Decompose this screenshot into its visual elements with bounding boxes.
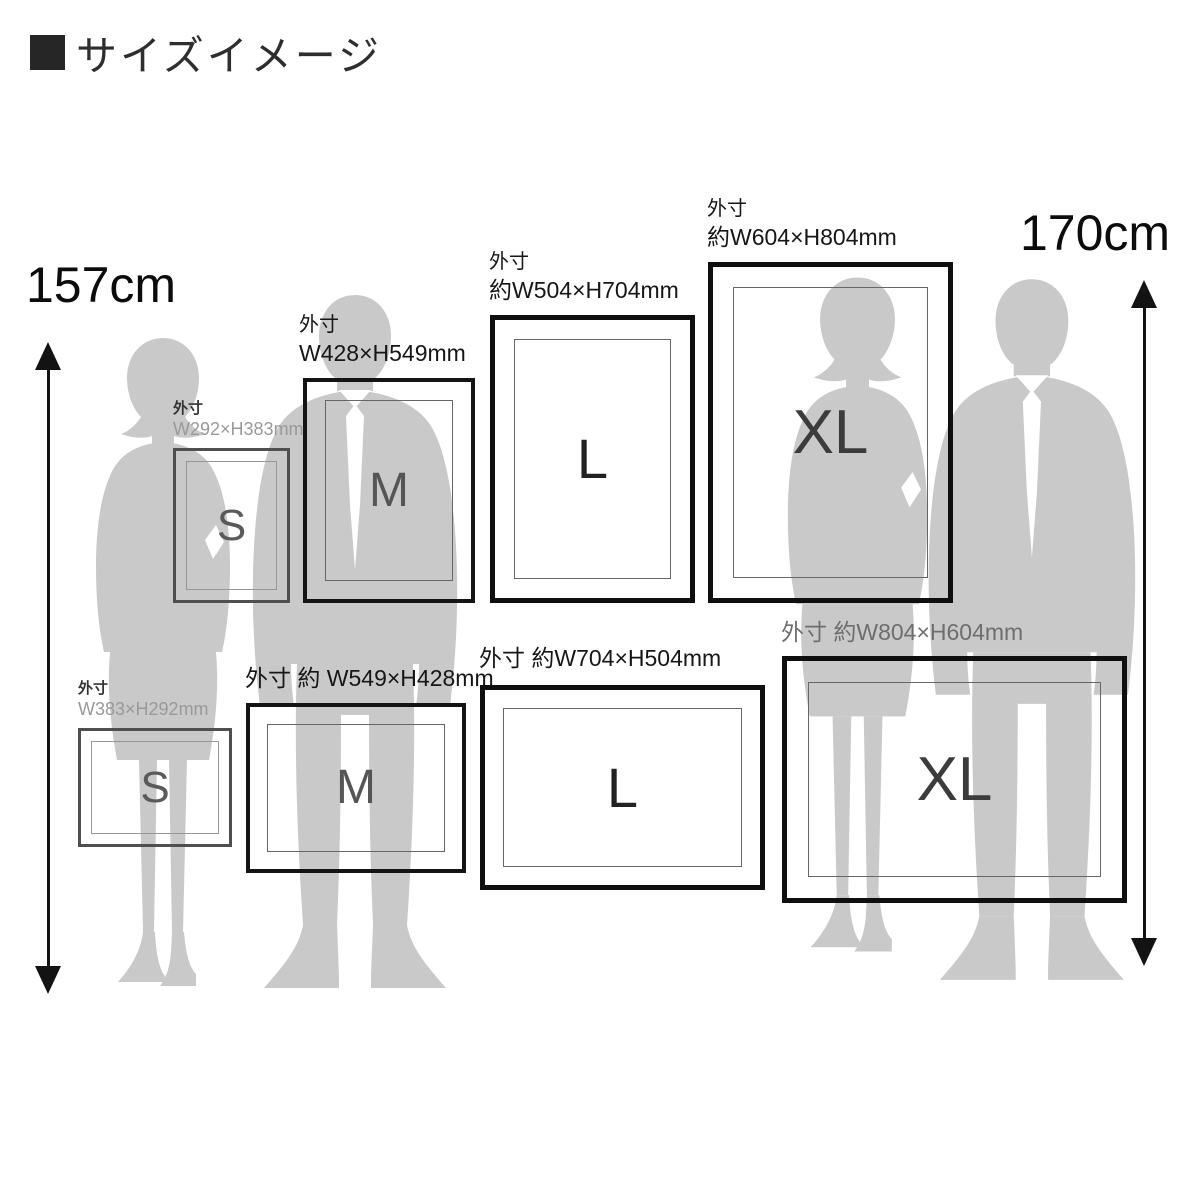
height-label-170cm: 170cm bbox=[1020, 204, 1170, 262]
frame-inner-mat bbox=[325, 400, 453, 581]
frame-size-label: 外寸 W292×H383mm bbox=[173, 399, 304, 441]
frame-landscape-s: S bbox=[78, 728, 232, 847]
frame-size-label: 外寸 W383×H292mm bbox=[78, 679, 209, 721]
frame-inner-mat bbox=[808, 682, 1101, 877]
title-bullet-square-icon bbox=[30, 35, 65, 70]
frame-size-label: 外寸 約W604×H804mm bbox=[707, 197, 897, 252]
frame-inner-mat bbox=[186, 461, 277, 590]
label-outer-dim: 外寸 bbox=[299, 313, 466, 339]
frame-size-label: 外寸 約 W549×H428mm bbox=[245, 664, 494, 693]
frame-landscape-l: L bbox=[480, 685, 765, 890]
height-label-157cm: 157cm bbox=[26, 256, 176, 314]
label-dimensions: 外寸 約W704×H504mm bbox=[479, 644, 721, 673]
label-dimensions: 約W604×H804mm bbox=[707, 223, 897, 252]
label-outer-dim: 外寸 bbox=[173, 399, 304, 418]
frame-inner-mat bbox=[514, 339, 671, 579]
label-dimensions: 外寸 約 W549×H428mm bbox=[245, 664, 494, 693]
frame-size-label: 外寸 約W504×H704mm bbox=[489, 250, 679, 305]
frame-portrait-l: L bbox=[490, 315, 695, 603]
label-outer-dim: 外寸 bbox=[489, 250, 679, 276]
label-outer-dim: 外寸 bbox=[78, 679, 209, 698]
frame-landscape-xl: XL bbox=[782, 656, 1127, 903]
arrow-down-icon bbox=[1131, 938, 1157, 966]
height-arrow-left-line bbox=[47, 360, 50, 968]
frame-portrait-s: S bbox=[173, 448, 290, 603]
frame-size-label: 外寸 約W804×H604mm bbox=[781, 618, 1023, 647]
frame-inner-mat bbox=[91, 741, 219, 834]
arrow-up-icon bbox=[35, 342, 61, 370]
label-dimensions: W292×H383mm bbox=[173, 418, 304, 441]
frame-inner-mat bbox=[733, 287, 928, 578]
page-title: サイズイメージ bbox=[30, 22, 382, 82]
label-outer-dim: 外寸 bbox=[707, 197, 897, 223]
frame-inner-mat bbox=[267, 724, 445, 852]
arrow-down-icon bbox=[35, 966, 61, 994]
frame-portrait-xl: XL bbox=[708, 262, 953, 603]
height-arrow-right-line bbox=[1143, 298, 1146, 946]
frame-inner-mat bbox=[503, 708, 742, 867]
frame-landscape-m: M bbox=[246, 703, 466, 873]
label-dimensions: 外寸 約W804×H604mm bbox=[781, 618, 1023, 647]
size-image-diagram: サイズイメージ 157cm 170cm 外寸 W292×H383mm S 外寸 … bbox=[0, 0, 1200, 1200]
frame-size-label: 外寸 W428×H549mm bbox=[299, 313, 466, 368]
label-dimensions: W428×H549mm bbox=[299, 339, 466, 368]
arrow-up-icon bbox=[1131, 280, 1157, 308]
frame-size-label: 外寸 約W704×H504mm bbox=[479, 644, 721, 673]
label-dimensions: 約W504×H704mm bbox=[489, 276, 679, 305]
label-dimensions: W383×H292mm bbox=[78, 698, 209, 721]
frame-portrait-m: M bbox=[303, 378, 475, 603]
page-title-text: サイズイメージ bbox=[76, 22, 382, 82]
